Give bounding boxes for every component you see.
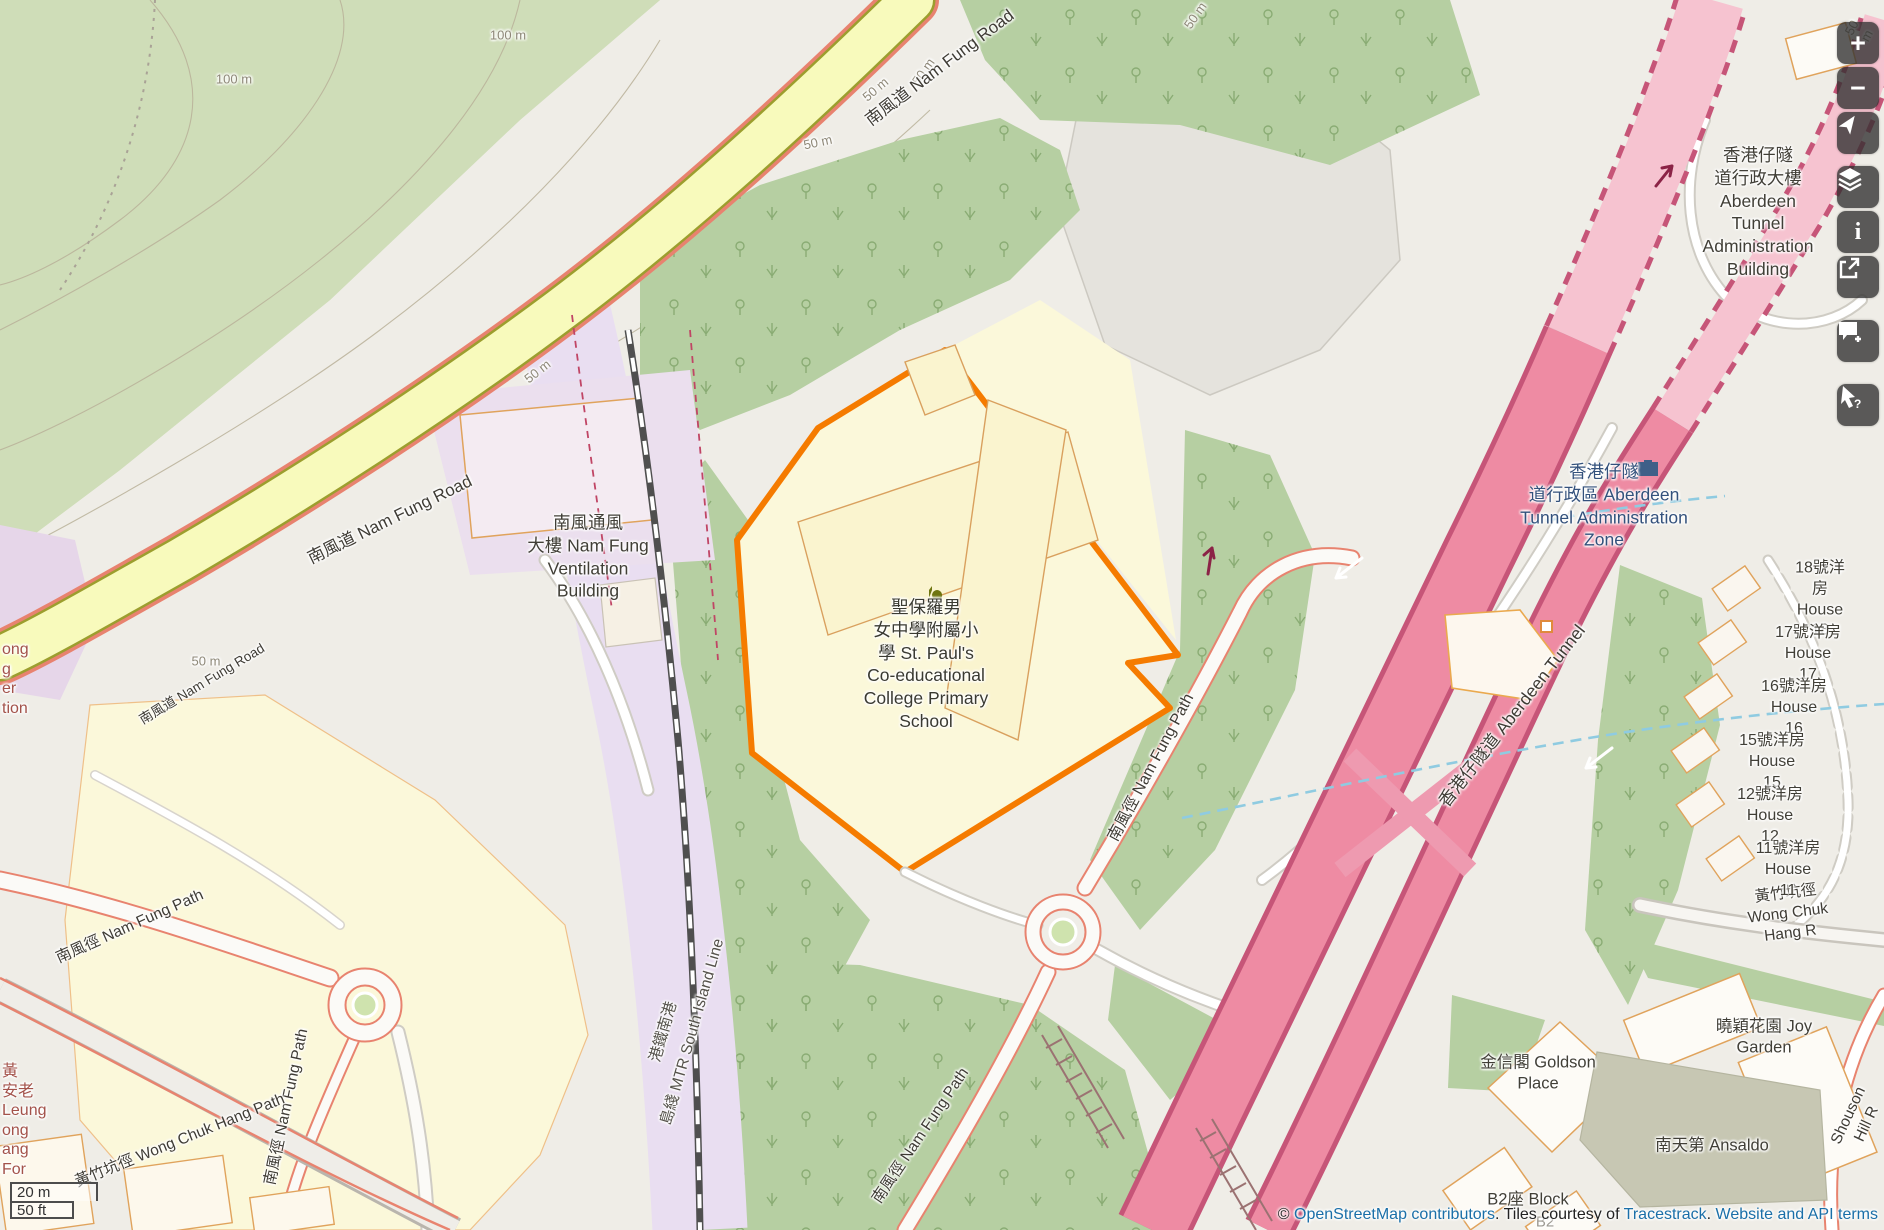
navigation-arrow-icon	[1837, 112, 1861, 136]
scale-bar: 20 m 50 ft	[10, 1182, 98, 1219]
query-cursor-icon: ?	[1837, 384, 1863, 410]
layers-icon	[1837, 166, 1863, 192]
map-canvas[interactable]: 100 m 100 m 50 m 50 m 50 m 50 m 50 m 50 …	[0, 0, 1884, 1230]
layers-button[interactable]	[1837, 166, 1879, 208]
zoom-out-button[interactable]: −	[1837, 67, 1879, 109]
locate-button[interactable]	[1837, 112, 1879, 154]
svg-text:?: ?	[1854, 397, 1861, 410]
share-icon	[1837, 256, 1861, 280]
minus-icon: −	[1850, 75, 1866, 102]
query-features-button[interactable]: ?	[1837, 384, 1879, 426]
plus-icon: +	[1850, 30, 1866, 57]
attribution: © OpenStreetMap contributors. Tiles cour…	[1278, 1206, 1878, 1224]
copyright-text: ©	[1278, 1206, 1294, 1223]
info-icon: i	[1855, 220, 1862, 244]
scale-metric: 20 m	[10, 1182, 98, 1201]
map-tiles	[0, 0, 1884, 1230]
osm-contributors-link[interactable]: OpenStreetMap contributors	[1294, 1206, 1495, 1223]
scale-imperial: 50 ft	[10, 1201, 74, 1219]
info-button[interactable]: i	[1837, 211, 1879, 253]
comment-plus-icon	[1837, 320, 1863, 344]
tiles-text: . Tiles courtesy of	[1495, 1206, 1624, 1223]
tracestrack-link[interactable]: Tracestrack	[1624, 1206, 1707, 1223]
zoom-in-button[interactable]: +	[1837, 22, 1879, 64]
add-note-button[interactable]	[1837, 320, 1879, 362]
share-button[interactable]	[1837, 256, 1879, 298]
terms-link[interactable]: Website and API terms	[1716, 1206, 1878, 1223]
